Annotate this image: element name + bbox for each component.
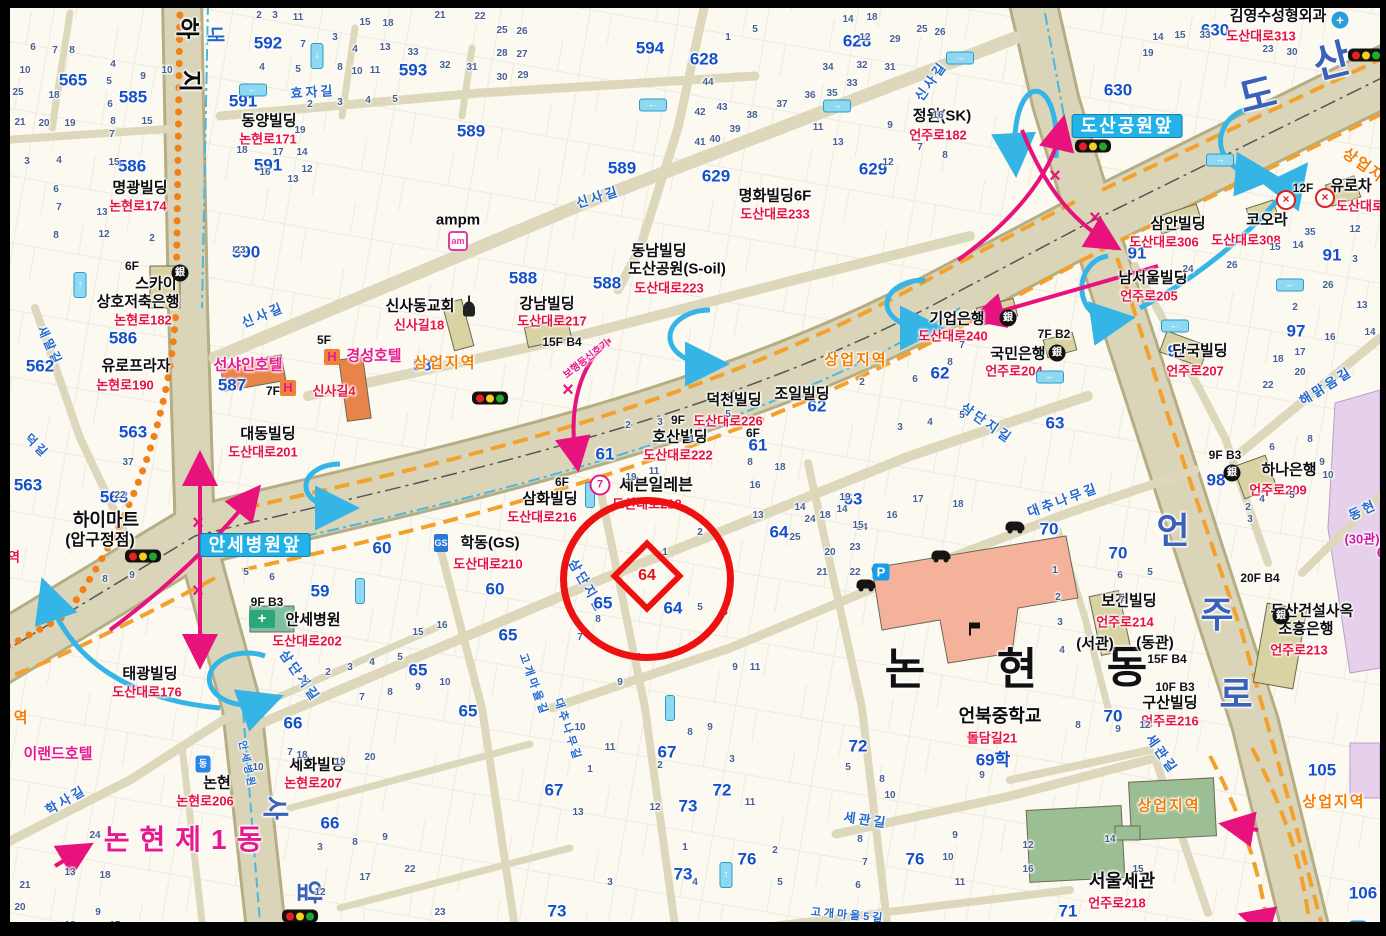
parcel-number: 24 <box>89 831 100 841</box>
map-label: 안세병원 <box>285 613 340 628</box>
parcel-number: 11 <box>745 798 756 808</box>
parcel-number: 5 <box>1147 568 1153 578</box>
map-label: 스카이 <box>135 277 176 292</box>
parcel-number: 15 <box>852 521 863 531</box>
map-label: 신사동교회 <box>385 299 454 314</box>
map-label: 상업지역 <box>1302 795 1365 810</box>
parcel-number: 23 <box>849 543 860 553</box>
map-label: 66 <box>321 815 340 832</box>
parcel-number: 2 <box>772 846 778 856</box>
map-label: 남서울빌딩 <box>1118 271 1187 286</box>
parcel-number: 9 <box>617 678 623 688</box>
map-label: 하 <box>174 17 198 39</box>
map-label: 로 <box>1219 677 1252 713</box>
map-label: 세관길 <box>1144 732 1180 776</box>
car-icon <box>857 580 876 589</box>
parcel-number: 7 <box>56 203 62 213</box>
parcel-number: 22 <box>849 568 860 578</box>
map-label: 도산대로 <box>1336 200 1380 213</box>
parcel-number: 12 <box>649 803 660 813</box>
parcel-number: 35 <box>826 89 837 99</box>
parcel-number: 18 <box>296 751 307 761</box>
parcel-number: 3 <box>1057 618 1063 628</box>
map-label: 69학 <box>976 752 1011 769</box>
parcel-number: 1 <box>1052 566 1058 576</box>
map-label: 신사길 <box>913 59 949 103</box>
parcel-number: 13 <box>379 43 390 53</box>
xm-icon: × <box>192 581 204 601</box>
map-label: 70 <box>1109 545 1128 562</box>
map-label: 논현로171 <box>239 133 297 146</box>
parcel-number: 7 <box>109 130 115 140</box>
parcel-number: 12 <box>1349 225 1360 235</box>
parcel-number: 41 <box>694 138 705 148</box>
parcel-number: 20 <box>38 119 49 129</box>
parcel-number: 14 <box>1152 33 1163 43</box>
map-label: 10F B3 <box>1155 681 1194 693</box>
parcel-number: 10 <box>574 723 585 733</box>
parcel-number: 25 <box>916 25 927 35</box>
map-label: 65 <box>459 703 478 720</box>
parcel-number: 16 <box>749 481 760 491</box>
parcel-number: 39 <box>729 125 740 135</box>
parcel-number: 23 <box>234 246 245 256</box>
parcel-number: 15 <box>108 158 119 168</box>
parcel-number: 2 <box>307 100 313 110</box>
map-label: 유로프라자 <box>101 359 170 374</box>
parcel-number: 5 <box>295 65 301 75</box>
parcel-number: 3 <box>24 157 30 167</box>
map-label: 언주로205 <box>1120 290 1178 303</box>
parcel-number: 16 <box>886 511 897 521</box>
parcel-number: 7 <box>52 46 58 56</box>
parcel-number: 17 <box>109 921 120 922</box>
parcel-number: 9 <box>140 72 146 82</box>
parcel-number: 3 <box>347 663 353 673</box>
map-label: 628 <box>690 51 718 68</box>
map-label: 서울세관 <box>1089 872 1155 890</box>
hotel-icon: H <box>280 380 296 396</box>
parcel-number: 19 <box>64 119 75 129</box>
screenshot-frame: 도산언주로하지내사앞논현동논현제1동신사길신사길신사길효자길삼단지길삼단지길삼단… <box>0 0 1386 936</box>
parcel-number: 25 <box>496 26 507 36</box>
bank-icon: 銀 <box>1273 608 1290 625</box>
parcel-number: 15 <box>1132 865 1143 875</box>
map-label: 71 <box>1059 903 1078 920</box>
parcel-number: 9 <box>95 908 101 918</box>
map-label: 세관길 <box>843 810 889 829</box>
map-label: 고개마을길 <box>517 652 550 717</box>
parcel-number: 4 <box>56 156 62 166</box>
parcel-number: 15 <box>412 628 423 638</box>
map-label: 588 <box>593 275 621 292</box>
parcel-number: 17 <box>359 873 370 883</box>
oneway-icon: ← <box>239 84 267 97</box>
parcel-number: 2 <box>1292 303 1298 313</box>
map-label: 조일빌딩 <box>774 387 829 402</box>
map-label: 삼화빌딩 <box>522 492 577 507</box>
parcel-number: 18 <box>952 500 963 510</box>
map-label: 도 <box>1235 72 1280 120</box>
map-label: 논현로206 <box>176 795 234 808</box>
map-label: 73 <box>679 798 698 815</box>
parcel-number: 10 <box>884 791 895 801</box>
map-label: 593 <box>399 62 427 79</box>
map-label: 논현로207 <box>284 777 342 790</box>
map-label: 경성호텔 <box>346 349 401 364</box>
parcel-number: 44 <box>702 78 713 88</box>
xm-icon: × <box>562 380 574 400</box>
map-label: 6 <box>1377 546 1380 561</box>
parcel-number: 13 <box>572 808 583 818</box>
parcel-number: 14 <box>1364 328 1375 338</box>
map-label: 도산대로201 <box>228 446 298 459</box>
map-labels-layer: 도산언주로하지내사앞논현동논현제1동신사길신사길신사길효자길삼단지길삼단지길삼단… <box>10 8 1380 922</box>
parcel-number: 12 <box>1139 721 1150 731</box>
map-label: 63 <box>1046 415 1065 432</box>
park-icon: P <box>1350 921 1367 923</box>
map-label: 돌담길21 <box>967 732 1017 745</box>
map-label: 59 <box>311 583 330 600</box>
parcel-number: 35 <box>1304 228 1315 238</box>
parcel-number: 16 <box>932 111 943 121</box>
parcel-number: 8 <box>1075 721 1081 731</box>
parcel-number: 1 <box>587 765 593 775</box>
parcel-number: 26 <box>934 28 945 38</box>
parcel-number: 18 <box>99 871 110 881</box>
parcel-number: 3 <box>657 418 663 428</box>
map-label: 김영수성형외과 <box>1230 9 1327 24</box>
parcel-number: 7 <box>577 633 583 643</box>
parcel-number: 8 <box>102 575 108 585</box>
parcel-number: 5 <box>243 568 249 578</box>
parcel-number: 13 <box>287 175 298 185</box>
parcel-number: 36 <box>804 91 815 101</box>
map-label: 도산대로202 <box>272 635 342 648</box>
parcel-number: 6 <box>855 881 861 891</box>
parcel-number: 23 <box>1262 45 1273 55</box>
bank-icon: 銀 <box>1049 345 1066 362</box>
map-label: 언주로213 <box>1270 644 1328 657</box>
map-label: 73 <box>548 903 567 920</box>
intersection-banner: 안세병원앞 <box>201 534 310 556</box>
parcel-number: 17 <box>272 148 283 158</box>
parcel-number: 9 <box>887 121 893 131</box>
hotel-icon: H <box>324 349 340 365</box>
parcel-number: 38 <box>746 111 757 121</box>
map-label: 592 <box>254 35 282 52</box>
parcel-number: 12 <box>859 33 870 43</box>
map-label: 상업지역 <box>824 353 887 368</box>
map-label: 105 <box>1308 762 1336 779</box>
map-label: 76 <box>738 851 757 868</box>
map-label: 586 <box>118 158 146 175</box>
parcel-number: 19 <box>334 758 345 768</box>
parcel-number: 31 <box>884 63 895 73</box>
parcel-number: 9 <box>707 723 713 733</box>
map-label: 논현 <box>203 776 231 791</box>
parcel-number: 4 <box>1259 495 1265 505</box>
map-label: 덕길 <box>23 432 51 460</box>
parcel-number: 20 <box>1294 368 1305 378</box>
map-label: 7F B2 <box>1038 328 1071 340</box>
parcel-number: 14 <box>794 503 805 513</box>
map-label: 6F <box>555 476 569 488</box>
parcel-number: 11 <box>649 467 660 477</box>
map-label: 도산대로313 <box>1226 30 1296 43</box>
parcel-number: 3 <box>332 33 338 43</box>
parcel-number: 7 <box>1119 596 1125 606</box>
map-canvas[interactable]: 도산언주로하지내사앞논현동논현제1동신사길신사길신사길효자길삼단지길삼단지길삼단… <box>10 8 1380 922</box>
intersection-banner: 도산공원앞 <box>1073 115 1182 137</box>
map-label: 도산대로210 <box>453 558 523 571</box>
map-label: 629 <box>702 168 730 185</box>
traffic-icon <box>1075 140 1111 153</box>
map-label: 594 <box>636 40 664 57</box>
parcel-number: 33 <box>1199 31 1210 41</box>
parcel-number: 8 <box>387 688 393 698</box>
parcel-number: 25 <box>789 533 800 543</box>
map-label: 585 <box>119 89 147 106</box>
map-label: 도산공원(S-oil) <box>628 262 726 277</box>
map-label: 동양빌딩 <box>241 114 296 129</box>
parcel-number: 1 <box>725 33 731 43</box>
map-label: 6F <box>125 260 139 272</box>
oneway-icon: ← <box>639 99 667 112</box>
map-label: 563 <box>119 424 147 441</box>
map-label: 이랜드호텔 <box>23 747 92 762</box>
map-label: 60 <box>373 540 392 557</box>
map-label: 명화빌딩6F <box>739 189 812 204</box>
parcel-number: 18 <box>382 19 393 29</box>
parcel-number: 8 <box>947 358 953 368</box>
parcel-number: 3 <box>337 98 343 108</box>
oneway-icon: ↑ <box>74 272 87 298</box>
parcel-number: 1 <box>302 675 308 685</box>
map-label: 586 <box>109 330 137 347</box>
map-label: 호산빌딩 <box>652 430 707 445</box>
parcel-number: 37 <box>776 100 787 110</box>
map-label: 삼단지길 <box>278 648 323 704</box>
parcel-number: 7 <box>300 40 306 50</box>
map-label: 조흥은행 <box>1278 622 1333 637</box>
map-label: 코오라 <box>1246 213 1287 228</box>
map-label: 9F B3 <box>1209 449 1242 461</box>
parcel-number: 10 <box>942 853 953 863</box>
parcel-number: 31 <box>466 63 477 73</box>
parcel-number: 2 <box>325 668 331 678</box>
parcel-number: 4 <box>1059 646 1065 656</box>
oneway-icon: ↑ <box>720 862 733 888</box>
map-label: 선샤인호텔 <box>213 358 282 373</box>
parcel-number: 20 <box>364 753 375 763</box>
map-label: 대추나무길 <box>1026 481 1101 519</box>
oneway-icon: ← <box>1161 320 1189 333</box>
parcel-number: 11 <box>370 66 381 76</box>
map-label: 67 <box>658 744 677 761</box>
map-label: 동남빌딩 <box>631 244 686 259</box>
flag-icon <box>969 623 971 636</box>
parcel-number: 5 <box>392 95 398 105</box>
parcel-number: 9 <box>952 831 958 841</box>
parcel-number: 7 <box>359 693 365 703</box>
map-label: 상업지역 <box>413 356 476 371</box>
parcel-number: 3 <box>729 755 735 765</box>
parcel-number: 15 <box>1269 243 1280 253</box>
map-label: 언북중학교 <box>959 707 1042 725</box>
map-label: 신사길 <box>575 184 622 210</box>
hospg-icon: + <box>249 610 275 628</box>
map-label: 5F <box>317 334 331 346</box>
map-label: 논현로182 <box>114 314 172 327</box>
parcel-number: 30 <box>496 73 507 83</box>
parcel-number: 15 <box>359 18 370 28</box>
parcel-number: 3 <box>317 843 323 853</box>
parcel-number: 18 <box>819 511 830 521</box>
parcel-number: 5 <box>725 410 731 420</box>
map-label: 60 <box>486 581 505 598</box>
parcel-number: 5 <box>1289 491 1295 501</box>
map-label: 91 <box>1323 247 1342 264</box>
map-label: 강남빌딩 <box>519 297 574 312</box>
map-label: 기업은행 <box>929 312 984 327</box>
parcel-number: 7 <box>959 341 965 351</box>
hospb-icon: + <box>1332 12 1349 29</box>
map-label: 72 <box>849 738 868 755</box>
parcel-number: 3 <box>272 11 278 21</box>
parcel-number: 9 <box>1319 458 1325 468</box>
parcel-number: 6 <box>107 100 113 110</box>
parcel-number: 21 <box>19 881 30 891</box>
map-label: 66 <box>284 715 303 732</box>
church-icon <box>463 302 475 317</box>
map-label: 도산대로306 <box>1129 236 1199 249</box>
parcel-number: 3 <box>897 423 903 433</box>
parcel-number: 18 <box>48 91 59 101</box>
parcel-number: 10 <box>1322 471 1333 481</box>
map-label: 상업지역 <box>1137 799 1200 814</box>
parcel-number: 9 <box>732 663 738 673</box>
gs-icon: GS <box>434 534 448 552</box>
map-label: 도산대로240 <box>918 330 988 343</box>
map-label: 도산대로216 <box>507 511 577 524</box>
map-label: 구산빌딩 <box>1142 696 1197 711</box>
parcel-number: 4 <box>692 878 698 888</box>
map-label: 9F B3 <box>251 596 284 608</box>
noent-icon: × <box>1315 188 1335 208</box>
parcel-number: 24 <box>804 515 815 525</box>
parcel-number: 21 <box>816 568 827 578</box>
map-label: 상호저축은행 <box>97 295 180 310</box>
map-label: 동현 <box>1347 498 1380 522</box>
parcel-number: 1 <box>682 843 688 853</box>
parcel-number: 21 <box>434 11 445 21</box>
map-label: 대동빌딩 <box>240 427 295 442</box>
map-label: 현 <box>997 648 1037 692</box>
map-label: 신사길4 <box>312 385 355 398</box>
parcel-number: 11 <box>293 13 304 23</box>
parcel-number: 2 <box>149 234 155 244</box>
parcel-number: 11 <box>605 743 616 753</box>
parcel-number: 18 <box>236 146 247 156</box>
parcel-number: 33 <box>846 79 857 89</box>
parcel-number: 6 <box>53 185 59 195</box>
map-label: 도산대로222 <box>643 449 713 462</box>
map-label: 논현로190 <box>96 379 154 392</box>
parcel-number: 6 <box>30 43 36 53</box>
map-label: 주 <box>1200 597 1233 633</box>
map-label: 도산대로176 <box>112 686 182 699</box>
parcel-number: 8 <box>1307 435 1313 445</box>
traffic-icon <box>1348 49 1380 62</box>
map-label: 해맑음길 <box>1297 365 1355 408</box>
oneway-icon: → <box>946 52 974 65</box>
map-label: 언주로214 <box>1096 616 1154 629</box>
parcel-number: 8 <box>747 458 753 468</box>
parcel-number: 26 <box>1226 261 1237 271</box>
map-label: 언주로204 <box>985 365 1043 378</box>
map-label: 명광빌딩 <box>112 181 167 196</box>
map-label: 565 <box>59 72 87 89</box>
parcel-number: 29 <box>517 71 528 81</box>
parcel-number: 5 <box>845 763 851 773</box>
map-label: 630 <box>1104 82 1132 99</box>
parcel-number: 12 <box>301 165 312 175</box>
parcel-number: 14 <box>842 15 853 25</box>
parcel-number: 4 <box>927 418 933 428</box>
parcel-number: 32 <box>856 61 867 71</box>
map-label: 태광빌딩 <box>122 667 177 682</box>
oneway-icon: → <box>1206 154 1234 167</box>
parcel-number: 4 <box>110 60 116 70</box>
traffic-icon <box>125 550 161 563</box>
map-label: 언주로182 <box>909 129 967 142</box>
oneway-icon: ← <box>1276 279 1304 292</box>
map-label: 도산대로217 <box>517 315 587 328</box>
parcel-number: 18 <box>866 13 877 23</box>
map-label: 논현로174 <box>109 200 167 213</box>
parcel-number: 2 <box>1245 503 1251 513</box>
map-label: 65 <box>409 662 428 679</box>
oneway-icon: ↓ <box>311 43 324 69</box>
parcel-number: 42 <box>694 108 705 118</box>
parcel-number: 4 <box>369 658 375 668</box>
parcel-number: 10 <box>161 66 172 76</box>
map-label: 내 <box>206 26 224 46</box>
map-label: 사 <box>262 796 288 820</box>
parcel-number: 33 <box>407 48 418 58</box>
parcel-number: 20 <box>824 548 835 558</box>
map-label: 106 <box>1349 885 1377 902</box>
map-label: 산 <box>1309 38 1354 86</box>
parcel-number: 9 <box>1115 725 1121 735</box>
parcel-number: 34 <box>822 63 833 73</box>
parcel-number: 22 <box>1262 381 1273 391</box>
ampm-icon: am <box>448 231 468 251</box>
parcel-number: 8 <box>942 151 948 161</box>
parcel-number: 19 <box>1142 49 1153 59</box>
parcel-number: 9 <box>979 771 985 781</box>
parcel-number: 4 <box>259 63 265 73</box>
parcel-number: 16 <box>1324 333 1335 343</box>
office-icon: 동 <box>196 756 211 773</box>
parcel-number: 22 <box>114 491 125 501</box>
oneway-icon <box>355 578 365 604</box>
map-label: 588 <box>509 270 537 287</box>
map-label: 589 <box>457 123 485 140</box>
parcel-number: 5 <box>959 411 965 421</box>
map-label: (압구정점) <box>65 533 135 549</box>
